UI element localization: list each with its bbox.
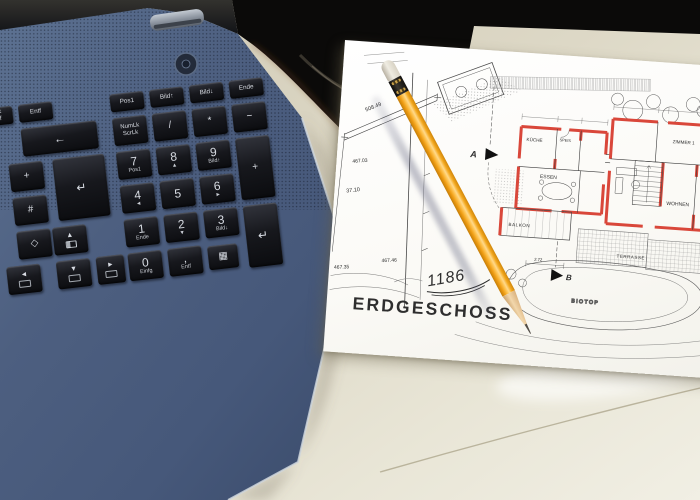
key-numpad-2: 2 ▼ — [163, 211, 200, 243]
key-diamond: ◇ — [16, 228, 53, 260]
dimension-2-72: 2.72 — [534, 257, 543, 263]
key-entf: Entf — [18, 101, 54, 123]
key-calculator: ▦ — [207, 243, 240, 270]
room-label-essen: ESSEN — [540, 174, 558, 181]
photo-scene: Druck S-Abf Entf Pos1 Bild↑ Bild↓ Ende ←… — [0, 0, 700, 500]
key-numpad-6: 6 ► — [199, 173, 236, 205]
battery-icon — [65, 240, 77, 248]
elevation-467-35: 467.35 — [334, 264, 350, 271]
key-arrow-up: ▲ — [52, 224, 89, 256]
left-arrow-sublabel: ◄ — [136, 201, 142, 207]
key-numpad-8: 8 ▲ — [155, 144, 192, 176]
room-label-kueche: KÜCHE — [526, 136, 542, 143]
key-numpad-divide: / — [152, 110, 189, 142]
balcony: BALKON — [500, 207, 572, 240]
house-left-wing: KÜCHE SPEIS ESSEN — [516, 127, 608, 215]
area-label-biotop: BIOTOP — [571, 298, 599, 306]
key-druck-sublabel: S-Abf — [0, 116, 2, 124]
key-numpad-comma: , Entf — [167, 245, 204, 277]
key-enter: ↵ — [52, 154, 111, 221]
key-bild-down: Bild↓ — [189, 82, 225, 104]
key-numpad-plus: + — [235, 135, 276, 200]
dimension-37-10: 37.10 — [346, 187, 360, 194]
red-walls-right-wing — [606, 119, 700, 234]
inner-walls-right-wing — [606, 119, 700, 234]
key-numpad-0: 0 Einfg — [127, 250, 164, 282]
room-label-zimmer1: ZIMMER 1 — [673, 139, 696, 146]
down-arrow-icon: ▼ — [70, 265, 78, 273]
key-numpad-multiply: * — [191, 106, 228, 138]
key-pos1: Pos1 — [109, 91, 145, 113]
floor-plan-paper: A B — [323, 40, 700, 381]
key-numpad-4: 4 ◄ — [120, 182, 157, 214]
staircase — [632, 161, 663, 207]
right-arrow-icon: ► — [107, 261, 115, 269]
house-right-wing: ZIMMER 1 WOHNEN — [601, 119, 700, 234]
key-numpad-7: 7 Pos1 — [116, 148, 153, 180]
fn-icon — [105, 270, 118, 278]
elevation-467-03: 467.03 — [352, 158, 368, 165]
key-arrow-left: ◄ — [6, 264, 43, 296]
right-arrow-sublabel: ► — [215, 192, 221, 198]
terrace: TERRASSE — [576, 229, 700, 274]
enter-icon: ↵ — [76, 181, 87, 194]
room-label-balkon: BALKON — [508, 222, 530, 228]
key-backspace: ← — [20, 120, 99, 156]
key-numpad-enter: ↵ — [243, 202, 284, 267]
key-numpad-minus: − — [231, 101, 268, 133]
dining-furniture — [538, 180, 576, 203]
key-arrow-right: ► — [95, 254, 126, 285]
section-marker-b: B — [551, 241, 575, 282]
keyboard: Druck S-Abf Entf Pos1 Bild↑ Bild↓ Ende ←… — [0, 74, 316, 319]
left-arrow-icon: ◄ — [20, 271, 28, 279]
key-numpad-3: 3 Bild↓ — [203, 207, 240, 239]
handwritten-number: 1186 — [426, 267, 467, 290]
elevation-467-46: 467.46 — [381, 258, 397, 265]
key-hash: # — [12, 194, 49, 226]
diamond-icon: ◇ — [30, 239, 39, 250]
numpad-enter-icon: ↵ — [257, 229, 268, 242]
key-numpad-5: 5 — [159, 178, 196, 210]
room-label-speis: SPEIS — [559, 137, 571, 143]
key-numpad-1: 1 Ende — [123, 216, 160, 248]
fn-icon — [68, 274, 81, 282]
key-numpad-9: 9 Bild↑ — [195, 139, 232, 171]
up-arrow-sublabel: ▲ — [172, 163, 178, 169]
key-numlock: NumLk ScrLk — [112, 115, 149, 147]
key-plus: + — [8, 161, 45, 193]
key-druck: Druck S-Abf — [0, 106, 14, 128]
up-arrow-icon: ▲ — [66, 232, 74, 240]
fn-icon — [19, 280, 32, 288]
key-bild-up: Bild↑ — [149, 86, 185, 108]
key-ende: Ende — [228, 77, 264, 99]
section-b-label: B — [566, 273, 573, 282]
room-label-wohnen: WOHNEN — [666, 201, 690, 209]
floor-plan-drawing: A B — [323, 40, 700, 381]
backspace-icon: ← — [53, 132, 66, 145]
section-a-label: A — [469, 149, 477, 159]
calculator-icon: ▦ — [218, 251, 229, 262]
power-button — [175, 53, 197, 75]
down-arrow-sublabel: ▼ — [179, 231, 185, 237]
key-arrow-down: ▼ — [56, 258, 93, 290]
